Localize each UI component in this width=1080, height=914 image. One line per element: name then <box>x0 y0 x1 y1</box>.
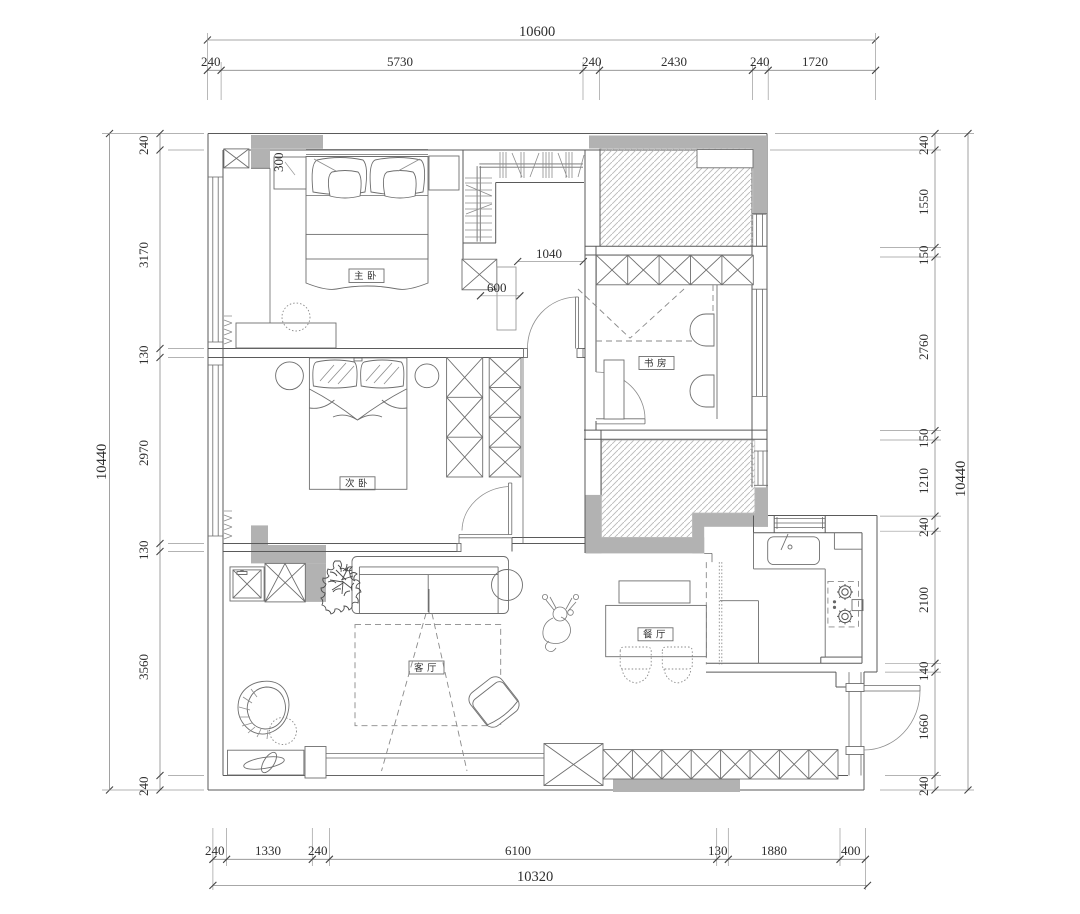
svg-text:10440: 10440 <box>94 444 110 480</box>
svg-text:600: 600 <box>487 280 507 295</box>
svg-text:10320: 10320 <box>517 869 553 885</box>
svg-text:240: 240 <box>308 843 328 858</box>
svg-text:240: 240 <box>916 136 931 156</box>
svg-text:1040: 1040 <box>536 246 562 261</box>
svg-text:150: 150 <box>916 429 931 449</box>
svg-text:10600: 10600 <box>519 24 555 40</box>
svg-text:240: 240 <box>136 136 151 156</box>
svg-text:2100: 2100 <box>916 587 931 613</box>
svg-text:5730: 5730 <box>387 54 413 69</box>
svg-text:240: 240 <box>136 777 151 797</box>
svg-text:1880: 1880 <box>761 843 787 858</box>
svg-text:240: 240 <box>582 54 602 69</box>
svg-text:300: 300 <box>271 153 286 173</box>
svg-text:餐厅: 餐厅 <box>643 629 669 641</box>
svg-text:1720: 1720 <box>802 54 828 69</box>
svg-text:1330: 1330 <box>255 843 281 858</box>
svg-text:主卧: 主卧 <box>354 270 380 282</box>
svg-text:240: 240 <box>205 843 225 858</box>
svg-text:1210: 1210 <box>916 468 931 494</box>
svg-text:3170: 3170 <box>136 242 151 268</box>
svg-text:10440: 10440 <box>953 461 969 497</box>
svg-text:3560: 3560 <box>136 654 151 680</box>
svg-text:客厅: 客厅 <box>414 662 440 674</box>
svg-text:次卧: 次卧 <box>345 478 371 490</box>
svg-text:240: 240 <box>916 518 931 538</box>
svg-text:140: 140 <box>916 662 931 682</box>
svg-text:2430: 2430 <box>661 54 687 69</box>
svg-text:130: 130 <box>708 843 728 858</box>
svg-text:书房: 书房 <box>644 357 670 369</box>
svg-text:2970: 2970 <box>136 440 151 466</box>
svg-text:240: 240 <box>201 54 221 69</box>
svg-text:130: 130 <box>136 541 151 561</box>
svg-text:150: 150 <box>916 246 931 266</box>
svg-text:2760: 2760 <box>916 334 931 360</box>
svg-text:1660: 1660 <box>916 714 931 740</box>
svg-text:240: 240 <box>916 777 931 797</box>
svg-text:1550: 1550 <box>916 189 931 215</box>
svg-text:400: 400 <box>841 843 861 858</box>
svg-text:6100: 6100 <box>505 843 531 858</box>
svg-text:240: 240 <box>750 54 770 69</box>
svg-text:130: 130 <box>136 346 151 366</box>
